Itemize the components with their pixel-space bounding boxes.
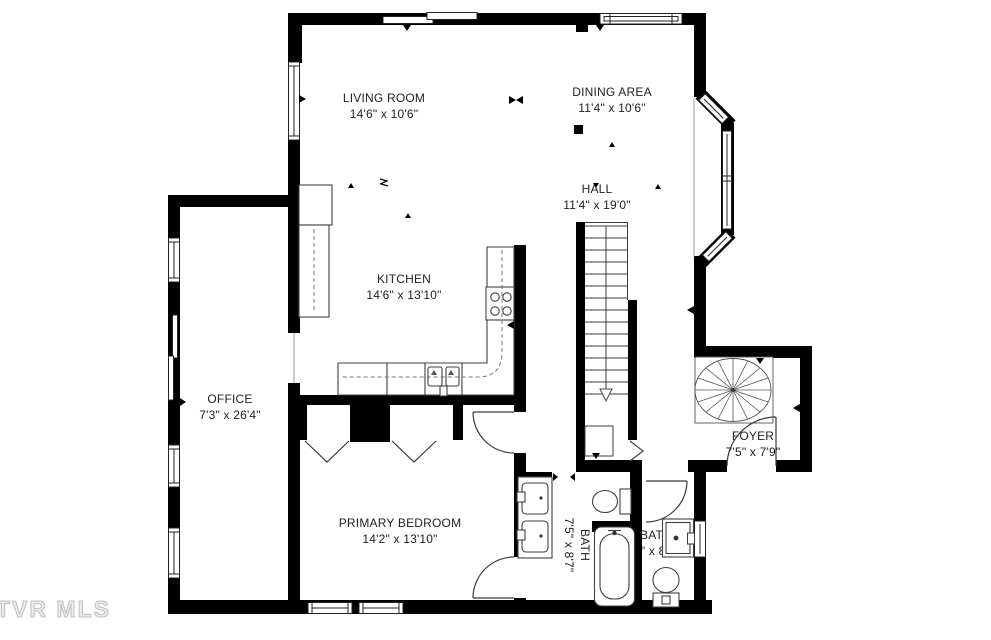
under-stair-storage bbox=[585, 426, 613, 456]
kitchen-counter-l bbox=[338, 247, 514, 395]
bay-window-upper bbox=[699, 94, 729, 124]
toilet bbox=[593, 489, 632, 514]
double-vanity bbox=[517, 477, 552, 558]
toilet bbox=[653, 568, 679, 608]
window-office-1 bbox=[169, 238, 180, 282]
door-bedroom-corridor bbox=[473, 557, 514, 598]
window-office-2 bbox=[169, 445, 180, 487]
closet-door-2 bbox=[392, 441, 436, 462]
refrigerator bbox=[299, 185, 332, 225]
bay-window-center bbox=[723, 131, 732, 229]
window-bedroom-2 bbox=[359, 603, 403, 614]
column-marker bbox=[574, 125, 583, 134]
stair-direction-arrow bbox=[600, 389, 612, 401]
shower bbox=[663, 519, 695, 557]
counter-dash-lines bbox=[314, 229, 502, 377]
door-bath-2 bbox=[646, 481, 687, 522]
closet-door-1 bbox=[305, 441, 349, 462]
stove bbox=[486, 287, 514, 320]
staircase bbox=[585, 222, 628, 456]
window-bath2 bbox=[695, 521, 706, 557]
bath-primary-fixtures bbox=[517, 477, 635, 606]
window-bedroom-1 bbox=[308, 603, 352, 614]
floor-plan-drawing bbox=[0, 0, 991, 640]
front-door bbox=[727, 417, 776, 466]
window-dining-top bbox=[600, 14, 682, 25]
window-living-left bbox=[289, 62, 300, 140]
ceiling-marker bbox=[380, 179, 388, 186]
floor-plan-page: LIVING ROOM 14'6" x 10'6" DINING AREA 11… bbox=[0, 0, 991, 640]
bay-window-lower bbox=[702, 232, 732, 262]
bifold-door-under-stairs bbox=[630, 441, 643, 461]
door-bedroom-hall bbox=[473, 412, 514, 453]
mls-watermark: TVR MLS bbox=[0, 596, 111, 623]
window-office-3 bbox=[169, 528, 180, 578]
shower-drain bbox=[674, 536, 679, 541]
bathtub bbox=[595, 527, 635, 606]
bath-2-fixtures bbox=[653, 519, 695, 607]
spiral-staircase bbox=[695, 357, 773, 423]
windows bbox=[169, 13, 733, 614]
